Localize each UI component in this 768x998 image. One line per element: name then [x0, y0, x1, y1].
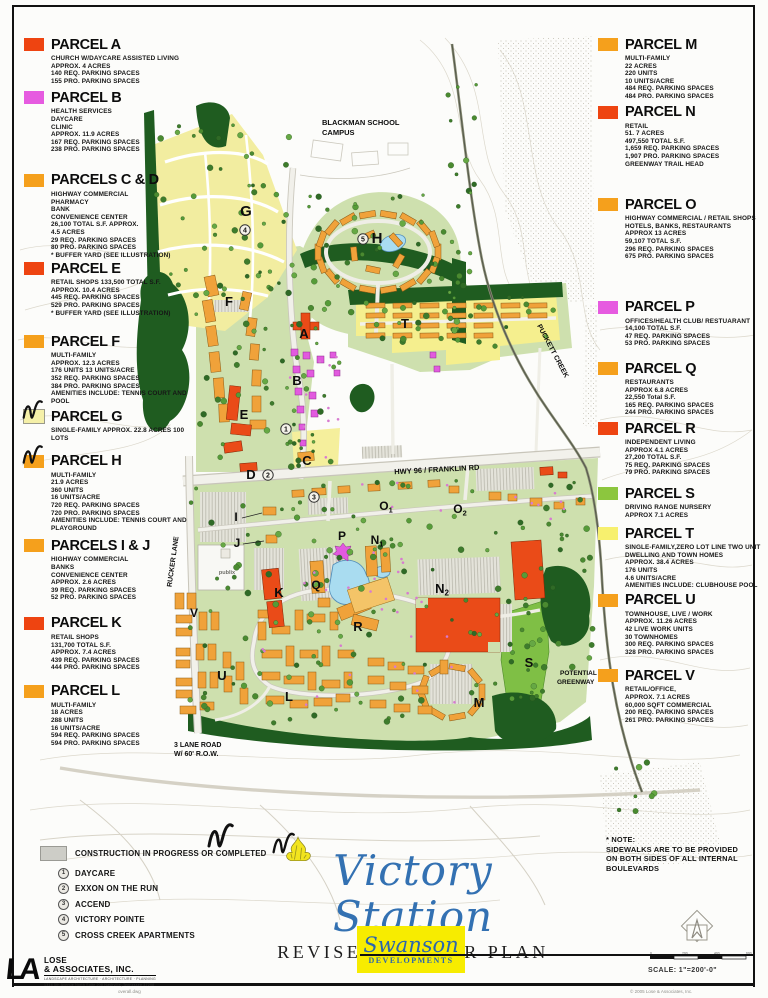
number-badge: 3 [58, 899, 69, 910]
legend-entry-parcel-a: PARCEL ACHURCH W/DAYCARE ASSISTED LIVING… [24, 36, 192, 85]
parcel-details: HIGHWAY COMMERCIALPHARMACYBANKCONVENIENC… [51, 191, 192, 259]
parcel-details: DRIVING RANGE NURSERYAPPROX 7.1 ACRES [625, 504, 766, 519]
parcel-title: PARCEL N [625, 104, 695, 120]
firm-tagline: LANDSCAPE ARCHITECTURE · ARCHITECTURE · … [44, 977, 156, 981]
legend-entry-parcels-c-d: PARCELS C & DHIGHWAY COMMERCIALPHARMACYB… [24, 172, 192, 259]
parcel-color-swatch [24, 335, 44, 348]
parcel-color-swatch [24, 38, 44, 51]
parcel-title: PARCEL G [51, 409, 122, 425]
parcel-details: RETAIL SHOPS 133,500 TOTAL S.F.APPROX. 1… [51, 279, 192, 317]
number-badge: 2 [58, 883, 69, 894]
sheet-border-left [12, 5, 14, 987]
map-number-badge-1: 1 [284, 427, 288, 434]
legend-entry-parcel-q: PARCEL QRESTAURANTSAPPROX 6.8 ACRES22,55… [598, 360, 766, 417]
map-number-badge-4: 4 [243, 228, 247, 235]
legend-entry-parcel-u: PARCEL UTOWNHOUSE, LIVE / WORKAPPROX. 11… [598, 592, 766, 657]
map-label-greenway: GREENWAY [557, 679, 595, 686]
parcel-color-swatch [24, 685, 44, 698]
parcel-details: HIGHWAY COMMERCIAL / RETAIL SHOPSHOTELS,… [625, 215, 766, 261]
parcel-title: PARCEL P [625, 299, 695, 315]
note-line: SIDEWALKS ARE TO BE PROVIDED [606, 845, 738, 855]
map-number-badge-3: 3 [312, 495, 316, 502]
parcel-title: PARCEL L [51, 683, 120, 699]
legend-entry-parcel-g: PARCEL GSINGLE-FAMILY APPROX. 22.8 ACRES… [24, 408, 192, 442]
map-label-p: P [338, 529, 346, 543]
firm-address: 1314 5th Avenue North Suite 200 Nashvill… [44, 983, 156, 987]
parcel-color-swatch [598, 487, 618, 500]
parcel-details: HIGHWAY COMMERCIALBANKSCONVENIENCE CENTE… [51, 556, 192, 602]
map-label-l: L [285, 689, 293, 704]
sheet-border-bottom-inner [360, 954, 755, 956]
parcel-color-swatch [598, 669, 618, 682]
map-label-campus: CAMPUS [322, 128, 355, 137]
parcel-color-swatch [598, 198, 618, 211]
sidewalk-note: * NOTE:SIDEWALKS ARE TO BE PROVIDEDON BO… [606, 835, 738, 873]
parcel-title: PARCEL S [625, 486, 695, 502]
parcel-color-swatch [24, 262, 44, 275]
firm-name-2: & ASSOCIATES, INC. [44, 965, 156, 976]
legend-entry-parcel-e: PARCEL ERETAIL SHOPS 133,500 TOTAL S.F.A… [24, 260, 192, 317]
parcel-details: INDEPENDENT LIVINGAPPROX 4.1 ACRES27,200… [625, 439, 766, 477]
parcel-details: MULTI-FAMILY18 ACRES288 UNITS16 UNITS/AC… [51, 702, 192, 748]
parcel-details: SINGLE-FAMILY APPROX. 22.8 ACRES 100LOTS [51, 427, 192, 442]
number-badge: 4 [58, 914, 69, 925]
left-parcel-legend: PARCEL ACHURCH W/DAYCARE ASSISTED LIVING… [24, 36, 192, 747]
map-label-b: B [292, 373, 301, 388]
legend-entry-parcel-v: PARCEL VRETAIL/OFFICE,APPROX. 7.1 ACRES6… [598, 667, 766, 724]
parcel-title: PARCEL K [51, 615, 121, 631]
note-line: * NOTE: [606, 835, 738, 845]
school-campus-outlines [300, 140, 410, 179]
parcel-details: HEALTH SERVICESDAYCARECLINICAPPROX. 11.9… [51, 108, 192, 154]
item-label: VICTORY POINTE [75, 915, 145, 924]
map-label-r: R [353, 619, 363, 634]
legend-entry-parcel-s: PARCEL SDRIVING RANGE NURSERYAPPROX 7.1 … [598, 485, 766, 519]
parcel-details: CHURCH W/DAYCARE ASSISTED LIVINGAPPROX. … [51, 55, 192, 85]
note-line: ON BOTH SIDES OF ALL INTERNAL [606, 854, 738, 864]
item-label: CROSS CREEK APARTMENTS [75, 931, 195, 940]
parcel-title: PARCEL H [51, 453, 121, 469]
parcel-title: PARCEL M [625, 37, 697, 53]
map-label-t: T [401, 316, 409, 331]
legend-entry-parcels-i-j: PARCELS I & JHIGHWAY COMMERCIALBANKSCONV… [24, 537, 192, 602]
map-label-q: Q [311, 578, 320, 592]
sheet-border-right [753, 5, 755, 987]
construction-swatch [40, 846, 67, 861]
map-label-m: M [474, 695, 485, 710]
check-mark-icon [21, 444, 45, 472]
legend-entry-parcel-k: PARCEL KRETAIL SHOPS131,700 TOTAL S.F.AP… [24, 615, 192, 672]
parcel-details: RETAIL SHOPS131,700 TOTAL S.F.APPROX. 7.… [51, 634, 192, 672]
developer-sub: DEVELOPMENTS [368, 956, 453, 965]
parcel-title: PARCEL F [51, 334, 120, 350]
parcel-details: MULTI-FAMILY21.9 ACRES360 UNITS16 UNITS/… [51, 472, 192, 533]
map-label-blackman-school: BLACKMAN SCHOOL [322, 118, 400, 127]
sheet-border-top [12, 5, 755, 7]
legend-entry-parcel-r: PARCEL RINDEPENDENT LIVINGAPPROX 4.1 ACR… [598, 420, 766, 477]
parcel-color-swatch [598, 301, 618, 314]
item-label: ACCEND [75, 900, 110, 909]
legend-entry-parcel-t: PARCEL TSINGLE-FAMILY,ZERO LOT LINE TWO … [598, 525, 766, 590]
parcel-color-swatch [24, 91, 44, 104]
parcel-color-swatch [598, 38, 618, 51]
legend-entry-parcel-m: PARCEL MMULTI-FAMILY22 ACRES220 UNITS10 … [598, 36, 766, 101]
parcel-details: SINGLE-FAMILY,ZERO LOT LINE TWO UNITDWEL… [625, 544, 766, 590]
torch-flame-icon [280, 836, 316, 876]
parcel-title: PARCEL T [625, 526, 694, 542]
legend-entry-parcel-h: PARCEL HMULTI-FAMILY21.9 ACRES360 UNITS1… [24, 453, 192, 533]
legend-entry-parcel-o: PARCEL OHIGHWAY COMMERCIAL / RETAIL SHOP… [598, 196, 766, 261]
parcel-title: PARCEL R [625, 421, 695, 437]
parcel-title: PARCEL A [51, 37, 121, 53]
parcel-title: PARCEL O [625, 197, 696, 213]
parcel-title: PARCEL B [51, 90, 121, 106]
map-label-e: E [240, 407, 249, 422]
parcel-color-swatch [24, 617, 44, 630]
map-label-j: J [234, 536, 241, 550]
legend-entry-parcel-b: PARCEL BHEALTH SERVICESDAYCARECLINICAPPR… [24, 89, 192, 154]
map-label-potential: POTENTIAL [560, 670, 597, 677]
map-label-i: I [234, 510, 237, 524]
map-label-w-60-r-o-w: W/ 60' R.O.W. [174, 751, 219, 758]
note-line: BOULEVARDS [606, 864, 738, 874]
map-number-badge-5: 5 [361, 237, 365, 244]
developer-name: Swanson [363, 935, 458, 956]
parcel-details: MULTI-FAMILYAPPROX. 12.3 ACRES176 UNITS … [51, 352, 192, 405]
parcel-color-swatch [598, 422, 618, 435]
parcel-color-swatch [24, 410, 44, 423]
parcel-title: PARCELS I & J [51, 538, 150, 554]
number-badge: 1 [58, 868, 69, 879]
scale-label: SCALE: 1"=200'-0" [648, 967, 758, 974]
developer-logo: Swanson DEVELOPMENTS [357, 926, 465, 973]
construction-label: CONSTRUCTION IN PROGRESS OR COMPLETED [75, 849, 267, 858]
parcel-details: MULTI-FAMILY22 ACRES220 UNITS10 UNITS/AC… [625, 55, 766, 101]
item-label: EXXON ON THE RUN [75, 884, 158, 893]
north-arrow-icon [672, 908, 724, 950]
parcel-details: TOWNHOUSE, LIVE / WORKAPPROX. 11.26 ACRE… [625, 611, 766, 657]
map-number-badge-2: 2 [266, 473, 270, 480]
legend-entry-parcel-f: PARCEL FMULTI-FAMILYAPPROX. 12.3 ACRES17… [24, 333, 192, 405]
map-label-d: D [246, 467, 255, 482]
map-label-s: S [525, 655, 534, 670]
footer-copyright: © 2005 Lose & Associates, Inc. [630, 989, 692, 994]
scale-block: 0200400600 SCALE: 1"=200'-0" [648, 948, 758, 974]
parcel-details: OFFICES/HEALTH CLUB/ RESTUARANT14,100 TO… [625, 318, 766, 348]
parcel-title: PARCEL Q [625, 361, 696, 377]
parcel-details: RESTAURANTSAPPROX 6.8 ACRES22,550 Total … [625, 379, 766, 417]
footer-file-name: overall.dwg [118, 989, 141, 994]
map-label-u: U [217, 668, 226, 683]
map-label-c: C [302, 453, 312, 468]
check-mark-icon [21, 399, 45, 427]
firm-logo-monogram: LA [5, 956, 38, 984]
parcel-details: RETAIL/OFFICE,APPROX. 7.1 ACRES60,000 SQ… [625, 686, 766, 724]
parcel-details: RETAIL51. 7 ACRES497,550 TOTAL S.F.1,659… [625, 123, 766, 169]
map-label-publix: publix [219, 570, 236, 576]
right-parcel-legend: PARCEL MMULTI-FAMILY22 ACRES220 UNITS10 … [598, 36, 766, 724]
title-block: Victory Station REVISED MASTER PLAN Swan… [248, 848, 578, 963]
parcel-color-swatch [598, 106, 618, 119]
parcel-color-swatch [24, 539, 44, 552]
map-label-h: H [372, 230, 383, 247]
map-label-k: K [274, 585, 284, 600]
parcel-color-swatch [24, 455, 44, 468]
map-label-a: A [299, 326, 309, 341]
parcel-title: PARCEL U [625, 592, 695, 608]
legend-entry-parcel-p: PARCEL POFFICES/HEALTH CLUB/ RESTUARANT1… [598, 299, 766, 348]
parcel-color-swatch [598, 362, 618, 375]
parcel-title: PARCEL V [625, 668, 695, 684]
legend-entry-parcel-n: PARCEL NRETAIL51. 7 ACRES497,550 TOTAL S… [598, 104, 766, 169]
parcel-title: PARCEL E [51, 261, 121, 277]
legend-entry-parcel-l: PARCEL LMULTI-FAMILY18 ACRES288 UNITS16 … [24, 683, 192, 748]
map-label-f: F [225, 294, 233, 309]
number-badge: 5 [58, 930, 69, 941]
parcel-color-swatch [598, 594, 618, 607]
map-label-g: G [240, 203, 252, 220]
firm-logo-block: LA LOSE & ASSOCIATES, INC. LANDSCAPE ARC… [6, 956, 156, 987]
parcel-title: PARCELS C & D [51, 172, 159, 188]
parcel-color-swatch [24, 174, 44, 187]
item-label: DAYCARE [75, 869, 115, 878]
parcel-color-swatch [598, 527, 618, 540]
